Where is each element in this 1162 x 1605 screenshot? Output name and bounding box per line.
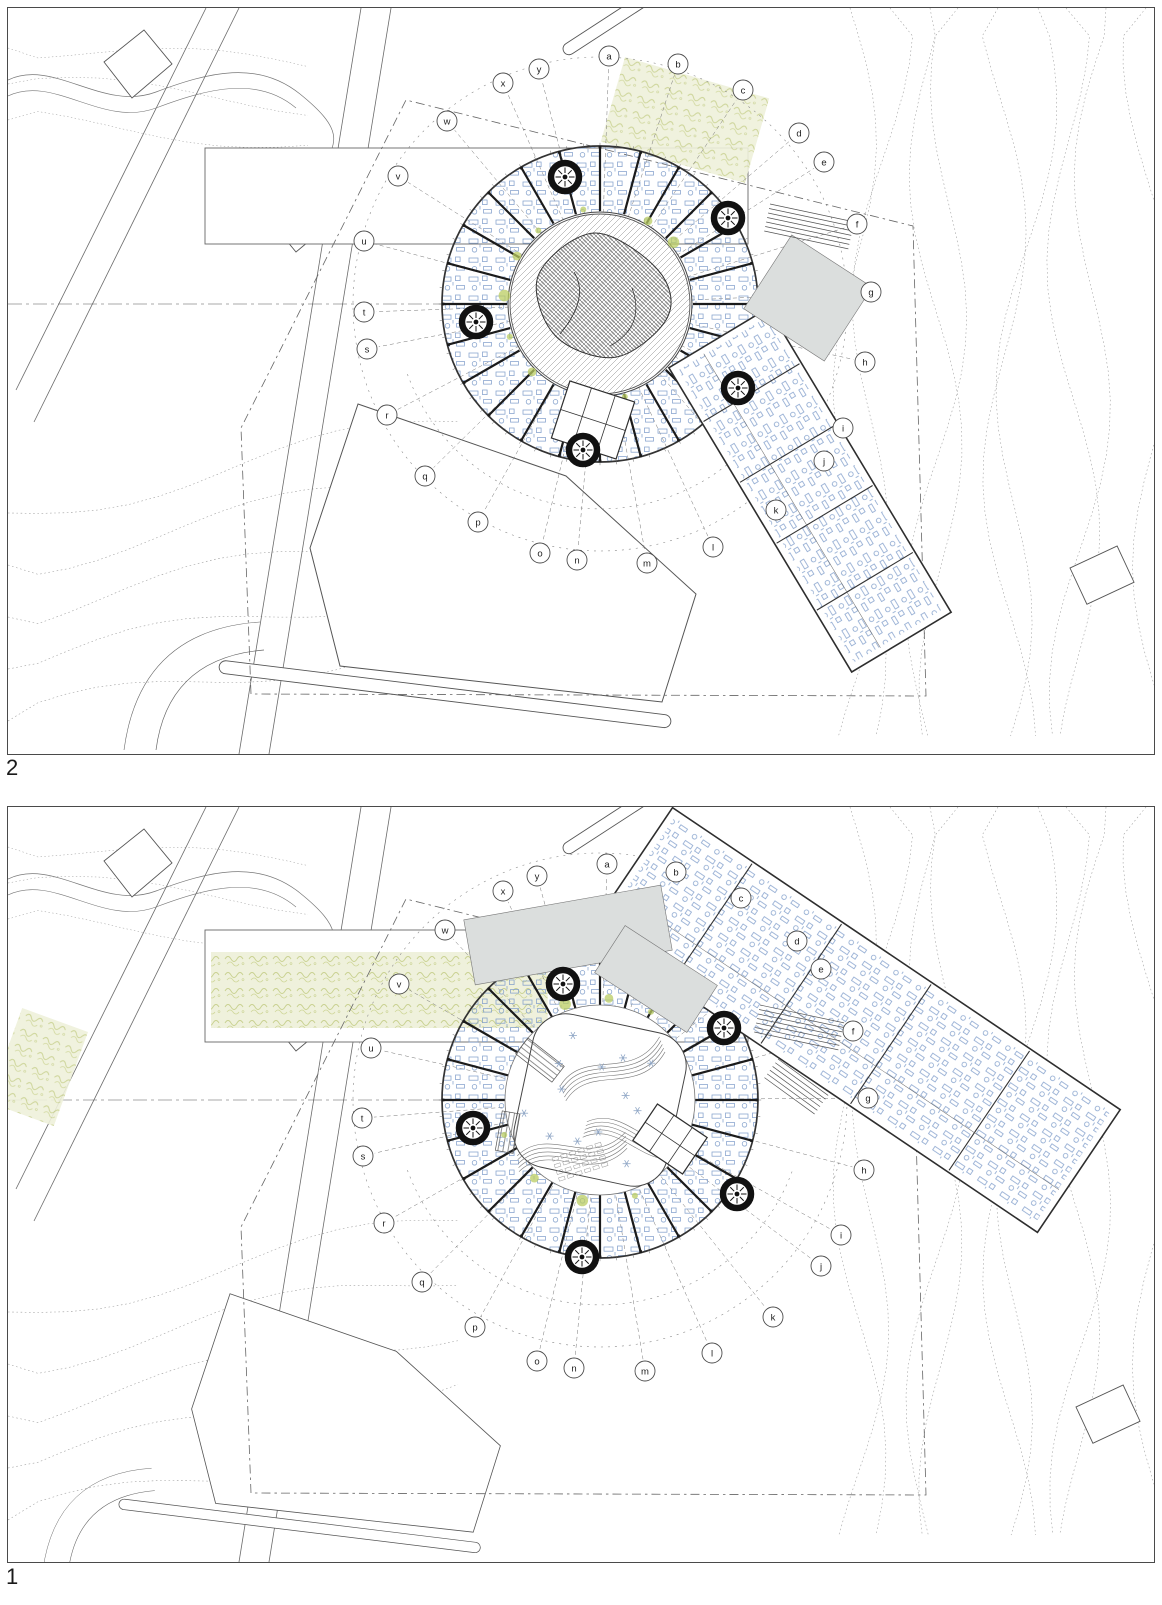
grid-marker-y: y (527, 866, 547, 886)
svg-text:h: h (861, 1165, 866, 1176)
svg-text:y: y (535, 871, 540, 882)
grid-marker-u: u (361, 1038, 381, 1058)
svg-text:q: q (419, 1277, 424, 1288)
grid-marker-q: q (415, 466, 435, 486)
grid-marker-e: e (811, 959, 831, 979)
grid-marker-a: a (599, 46, 619, 66)
svg-text:w: w (441, 925, 449, 936)
vegetation-patch (8, 1008, 88, 1126)
svg-text:u: u (368, 1043, 373, 1054)
stair-core (462, 308, 490, 336)
grid-marker-o: o (530, 543, 550, 563)
svg-text:u: u (361, 236, 366, 247)
svg-text:x: x (501, 78, 506, 89)
grid-marker-m: m (635, 1361, 655, 1381)
grid-marker-k: k (763, 1307, 783, 1327)
site-plan-level-1: abcdefghijklmnopqrstuvwxy (8, 807, 1154, 1562)
grid-marker-y: y (529, 59, 549, 79)
svg-text:c: c (739, 893, 744, 904)
neighbor-building (1076, 1385, 1140, 1443)
stair-core (723, 1180, 751, 1208)
svg-text:v: v (397, 979, 402, 990)
svg-text:a: a (606, 51, 612, 62)
svg-text:j: j (822, 456, 825, 467)
svg-text:f: f (852, 1026, 855, 1037)
grid-marker-d: d (787, 931, 807, 951)
svg-text:e: e (818, 964, 823, 975)
svg-text:n: n (574, 555, 579, 566)
grid-marker-r: r (374, 1213, 394, 1233)
grid-marker-j: j (814, 451, 834, 471)
svg-text:m: m (643, 558, 651, 569)
floor-plan-2-panel: abcdefghijklmnopqrstuvwxy (7, 7, 1155, 755)
svg-text:s: s (361, 1151, 366, 1162)
grid-marker-b: b (668, 54, 688, 74)
grid-marker-w: w (435, 920, 455, 940)
grid-marker-g: g (861, 282, 881, 302)
grid-marker-c: c (733, 80, 753, 100)
plan-1-label: 1 (6, 1566, 18, 1588)
grid-marker-l: l (703, 537, 723, 557)
grid-marker-c: c (731, 888, 751, 908)
floor-plan-1-panel: abcdefghijklmnopqrstuvwxy (7, 806, 1155, 1563)
grid-marker-v: v (389, 974, 409, 994)
grid-marker-w: w (437, 111, 457, 131)
stair-core (549, 970, 577, 998)
svg-text:n: n (571, 1363, 576, 1374)
svg-text:l: l (711, 1348, 713, 1359)
existing-buildings-outline (43, 1294, 501, 1562)
grid-marker-l: l (702, 1343, 722, 1363)
svg-text:g: g (868, 287, 873, 298)
grid-marker-g: g (858, 1088, 878, 1108)
svg-text:g: g (865, 1093, 870, 1104)
svg-text:m: m (641, 1366, 649, 1377)
grid-marker-f: f (843, 1021, 863, 1041)
grid-marker-u: u (354, 231, 374, 251)
grid-marker-f: f (847, 214, 867, 234)
svg-text:e: e (821, 157, 826, 168)
grid-marker-k: k (766, 500, 786, 520)
svg-text:o: o (534, 1356, 539, 1367)
svg-text:i: i (842, 423, 844, 434)
grid-marker-o: o (527, 1351, 547, 1371)
grid-marker-h: h (855, 352, 875, 372)
svg-text:w: w (443, 116, 451, 127)
stair-core (714, 204, 742, 232)
grid-marker-a: a (597, 854, 617, 874)
svg-text:a: a (604, 859, 610, 870)
grid-marker-p: p (468, 512, 488, 532)
grid-marker-n: n (567, 550, 587, 570)
stair-core (551, 163, 579, 191)
plan-2-label: 2 (6, 757, 18, 779)
site-plan-level-2: abcdefghijklmnopqrstuvwxy (8, 8, 1154, 754)
svg-text:r: r (382, 1218, 385, 1229)
svg-text:y: y (537, 64, 542, 75)
svg-text:s: s (365, 344, 370, 355)
svg-text:l: l (712, 542, 714, 553)
neighbor-building (1070, 546, 1134, 604)
svg-text:b: b (673, 867, 678, 878)
grid-marker-s: s (353, 1146, 373, 1166)
svg-text:x: x (501, 886, 506, 897)
grid-marker-h: h (854, 1160, 874, 1180)
grid-marker-q: q (412, 1272, 432, 1292)
svg-text:t: t (361, 1113, 364, 1124)
svg-text:k: k (774, 505, 779, 516)
stair-core (710, 1014, 738, 1042)
svg-text:c: c (741, 85, 746, 96)
stair-core (569, 436, 597, 464)
entry-steps (764, 204, 854, 249)
grid-marker-n: n (564, 1358, 584, 1378)
svg-text:r: r (385, 410, 388, 421)
svg-text:d: d (796, 128, 801, 139)
svg-text:f: f (856, 219, 859, 230)
grid-marker-x: x (493, 881, 513, 901)
svg-text:d: d (794, 936, 799, 947)
svg-text:h: h (862, 357, 867, 368)
svg-text:p: p (475, 517, 480, 528)
grid-marker-r: r (377, 405, 397, 425)
svg-text:o: o (537, 548, 542, 559)
svg-text:q: q (422, 471, 427, 482)
grid-marker-i: i (831, 1225, 851, 1245)
grid-marker-t: t (354, 302, 374, 322)
stair-core (568, 1243, 596, 1271)
svg-text:b: b (675, 59, 680, 70)
grid-marker-x: x (493, 73, 513, 93)
grid-marker-s: s (357, 339, 377, 359)
grid-marker-v: v (388, 166, 408, 186)
svg-text:t: t (363, 307, 366, 318)
svg-text:i: i (840, 1230, 842, 1241)
grid-marker-m: m (637, 553, 657, 573)
svg-text:v: v (396, 171, 401, 182)
building-wing (669, 308, 951, 672)
grid-marker-p: p (465, 1317, 485, 1337)
stair-core (459, 1114, 487, 1142)
grid-marker-b: b (666, 862, 686, 882)
svg-text:j: j (819, 1261, 822, 1272)
grid-marker-e: e (814, 152, 834, 172)
grid-marker-i: i (833, 418, 853, 438)
svg-text:p: p (472, 1322, 477, 1333)
grid-marker-t: t (352, 1108, 372, 1128)
grid-marker-j: j (811, 1256, 831, 1276)
stair-core (724, 374, 752, 402)
svg-text:k: k (771, 1312, 776, 1323)
grid-marker-d: d (789, 123, 809, 143)
